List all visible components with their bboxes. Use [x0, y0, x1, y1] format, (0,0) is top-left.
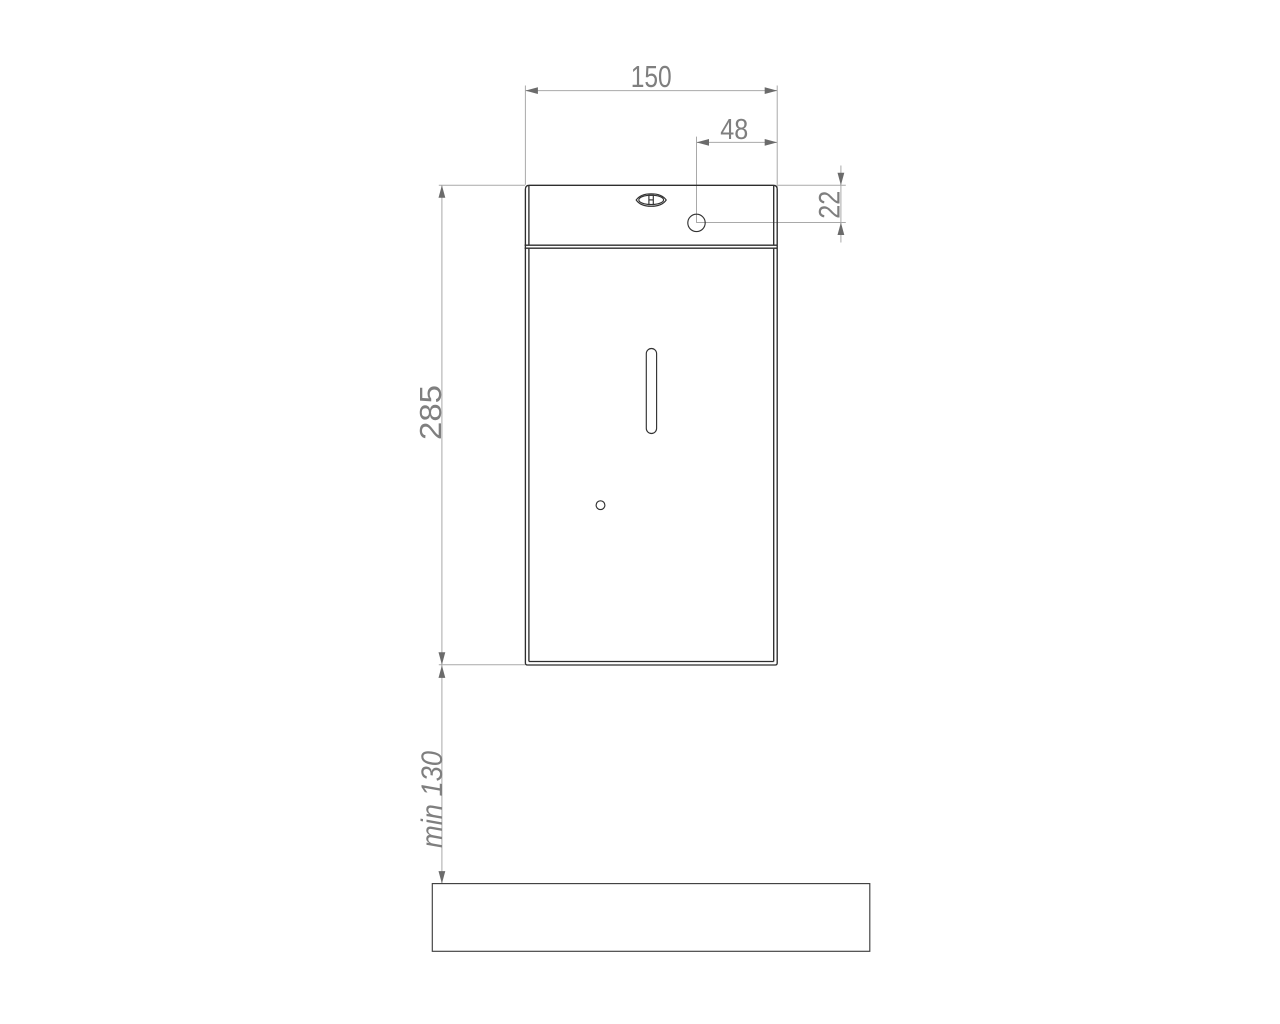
- svg-text:48: 48: [720, 114, 748, 146]
- svg-text:min 130: min 130: [416, 751, 449, 848]
- svg-text:150: 150: [631, 59, 672, 94]
- svg-text:22: 22: [814, 191, 847, 219]
- svg-text:285: 285: [413, 385, 448, 440]
